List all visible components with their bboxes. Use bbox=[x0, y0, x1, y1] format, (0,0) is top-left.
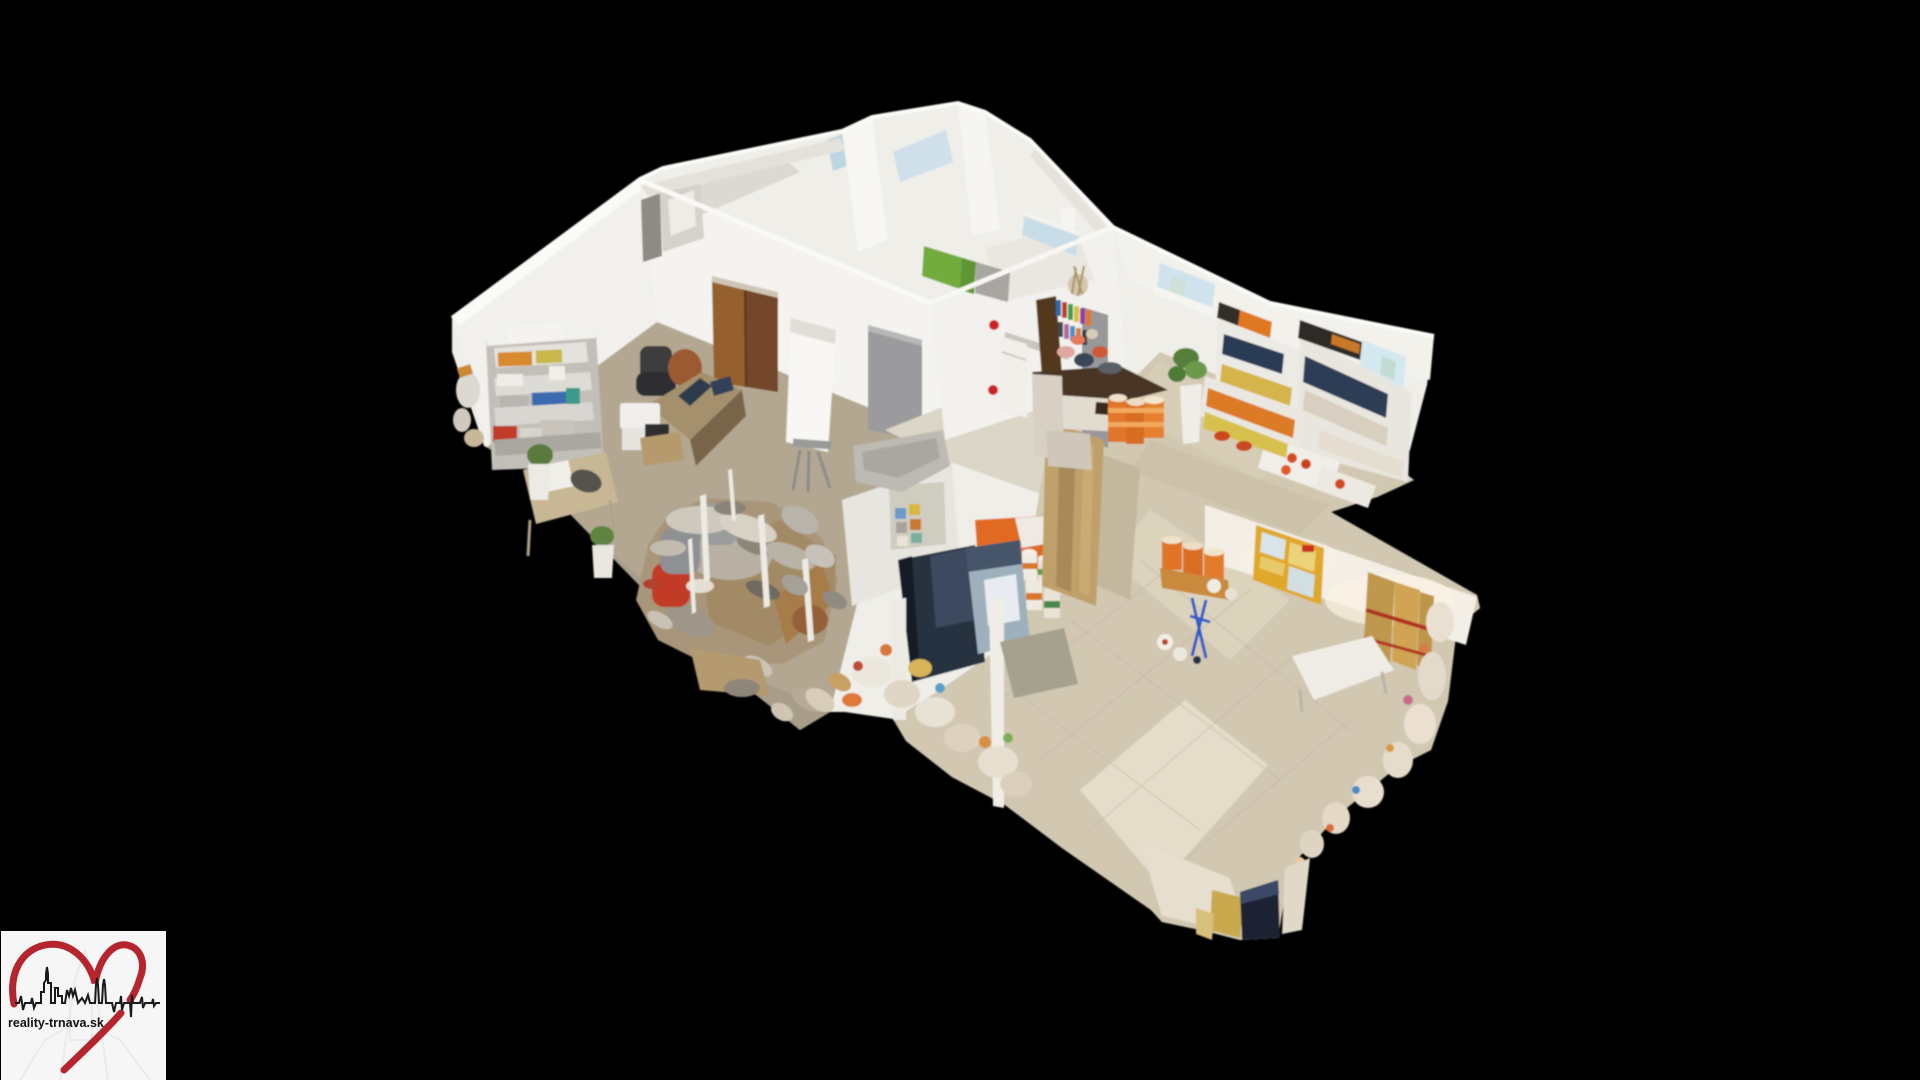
svg-text:reality-trnava.sk: reality-trnava.sk bbox=[8, 1016, 104, 1030]
